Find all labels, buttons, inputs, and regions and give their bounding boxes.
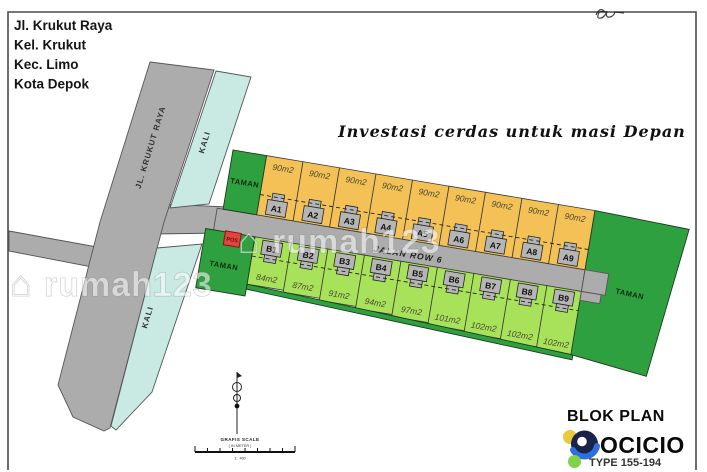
watermark-text: rumah123 — [44, 266, 213, 304]
svg-text:B4: B4 — [375, 262, 388, 274]
svg-text:A7: A7 — [489, 240, 502, 252]
svg-text:B9: B9 — [557, 292, 570, 304]
svg-text:B6: B6 — [448, 274, 461, 286]
scale-title: GRAFIS SCALE — [221, 437, 260, 442]
svg-text:B8: B8 — [521, 286, 534, 298]
tagline: Investasi cerdas untuk masi Depan — [337, 122, 686, 141]
address-line-4: Kota Depok — [14, 77, 90, 92]
svg-text:A8: A8 — [526, 246, 539, 258]
scale-bar: GRAFIS SCALE ( IN METER ) 1 : 400 — [195, 437, 295, 461]
svg-text:B5: B5 — [411, 268, 424, 280]
scale-unit: ( IN METER ) — [229, 444, 253, 448]
brand-logo-icon — [571, 431, 598, 458]
address-line-1: Jl. Krukut Raya — [14, 18, 113, 33]
address-line-3: Kec. Limo — [14, 57, 79, 72]
legend-title: BLOK PLAN — [567, 408, 665, 425]
blok-plan-sheet: JL. KRUKUT RAYA KALI KALI 90m2A1 90m2A2 … — [0, 0, 707, 472]
svg-text:A1: A1 — [270, 203, 283, 215]
branch-road — [9, 231, 97, 267]
svg-text:A9: A9 — [562, 252, 575, 264]
house-icon: ⌂ — [10, 263, 32, 304]
watermark-text: rumah123 — [272, 223, 441, 261]
site-road-end-step1 — [581, 270, 608, 296]
legend: BLOK PLAN OCICIO TYPE 155-194 — [563, 408, 685, 469]
svg-text:A2: A2 — [307, 209, 320, 221]
address-block: Jl. Krukut Raya Kel. Krukut Kec. Limo Ko… — [14, 18, 113, 92]
signature-scribble — [596, 10, 624, 19]
scale-ratio: 1 : 400 — [234, 457, 246, 461]
housing-site: 90m2A1 90m2A2 90m2A3 90m2A4 90m2A5 90m2A… — [194, 148, 690, 380]
north-arrow — [233, 372, 243, 434]
address-line-2: Kel. Krukut — [14, 38, 87, 53]
house-icon: ⌂ — [238, 220, 260, 261]
brand-name: OCICIO — [600, 432, 685, 458]
svg-text:B7: B7 — [484, 280, 497, 292]
legend-dot-green — [568, 455, 581, 468]
svg-text:A6: A6 — [453, 234, 466, 246]
legend-type-range: TYPE 155-194 — [589, 457, 662, 469]
